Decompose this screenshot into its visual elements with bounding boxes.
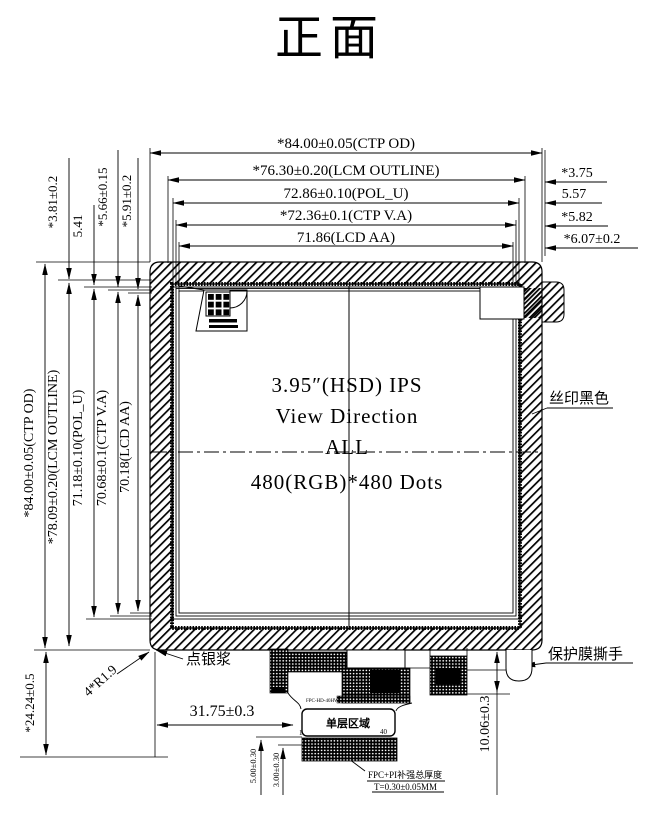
fpc-stiffener-left (270, 649, 288, 693)
dim-top-lcm-outline: *76.30±0.20(LCM OUTLINE) (253, 163, 440, 179)
dim-right-0: *3.75 (561, 166, 593, 181)
page-title: 正面 (275, 12, 385, 65)
label-single-layer: 单层区域 (326, 716, 370, 730)
dim-right-2: *5.82 (561, 210, 593, 225)
label-silk-black: 丝印黑色 (549, 390, 609, 407)
dim-top-ctp-va: *72.36±0.1(CTP V.A) (280, 208, 412, 224)
dim-bottom-height: *24.24±0.5 (22, 673, 37, 732)
fpc-stiffener-mid (288, 652, 347, 672)
display-size-text: 3.95″(HSD) IPS (271, 373, 422, 397)
pin-number-last: 40 (380, 728, 388, 736)
dim-top-lcd-aa: 71.86(LCD AA) (297, 230, 395, 246)
pin-number-first: 1 (299, 729, 303, 737)
dim-fpc-offset: 31.75±0.3 (190, 703, 255, 720)
dim-offset-pol: 5.41 (70, 215, 85, 238)
dim-fpc-height: 10.06±0.3 (478, 696, 493, 753)
gold-finger-strip (302, 738, 397, 761)
fiducial-mark-icon (179, 286, 247, 331)
tab-dark-pad (524, 288, 542, 318)
corner-notch (480, 287, 524, 319)
label-silver-paste: 点银浆 (186, 650, 231, 668)
drawing-page: 正面 (0, 0, 647, 819)
dim-offset-lcm: *3.81±0.2 (45, 176, 60, 229)
dim-right-1: 5.57 (562, 187, 587, 202)
fpc-neck-right (396, 703, 412, 711)
display-view-value: ALL (325, 435, 369, 459)
display-view-direction: View Direction (276, 404, 419, 428)
fpc-window (347, 650, 405, 668)
dim-thickness-a: 5.00±0.30 (248, 749, 258, 783)
dim-thickness-b: 3.00±0.30 (271, 753, 281, 787)
dim-left-lcd-aa: 70.18(LCD AA) (118, 401, 133, 493)
driver-ic (370, 670, 400, 693)
dim-corner-radius: 4*R1.9 (80, 662, 119, 700)
component-chip (436, 668, 460, 684)
label-film-tab: 保护膜撕手 (548, 646, 623, 663)
dim-left-lcm-outline: *78.09±0.20(LCM OUTLINE) (46, 369, 61, 544)
fpc-pad (272, 687, 285, 693)
display-resolution: 480(RGB)*480 Dots (251, 470, 444, 494)
fpc-part-number: FPC-HD-40HW (306, 699, 339, 704)
note-stiffener-line1: FPC+PI补强总厚度 (368, 769, 442, 780)
note-stiffener-line2: T=0.30±0.05MM (374, 782, 437, 792)
dim-offset-va: *5.66±0.15 (95, 167, 110, 226)
dim-top-ctp-od: *84.00±0.05(CTP OD) (277, 136, 415, 152)
fpc-neck-left (288, 693, 301, 709)
side-tab (542, 282, 564, 322)
dim-left-ctp-od: *84.00±0.05(CTP OD) (22, 388, 37, 517)
dim-left-ctp-va: 70.68±0.1(CTP V.A) (95, 389, 110, 506)
dim-right-3: *6.07±0.2 (564, 232, 621, 247)
fpc-edge-strip (337, 696, 410, 703)
dim-top-pol-u: 72.86±0.10(POL_U) (284, 186, 409, 202)
dim-left-pol-u: 71.18±0.10(POL_U) (71, 389, 86, 506)
film-tear-tab (506, 650, 532, 681)
front-view-drawing: 正面 (0, 0, 647, 819)
dim-offset-aa: *5.91±0.2 (119, 175, 134, 228)
